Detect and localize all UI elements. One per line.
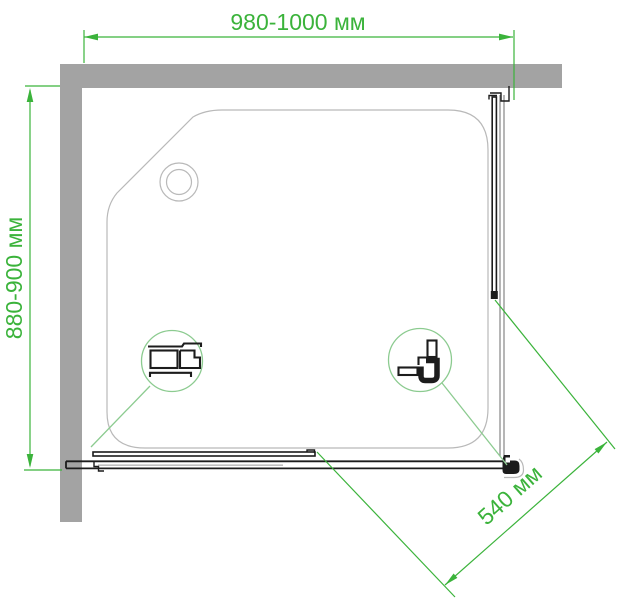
depth-dimension-label: 880-900 мм xyxy=(1,217,27,339)
corner-connector-notch xyxy=(506,458,511,463)
bottom-sliding-door xyxy=(93,450,315,456)
right-glass-panel xyxy=(500,95,504,456)
rail-left-bracket xyxy=(94,462,104,472)
shower-tray xyxy=(107,110,488,448)
right-sliding-door xyxy=(489,96,498,300)
door-roller-cap xyxy=(491,291,498,299)
top-view-schematic: 980-1000 мм 880-900 мм 540 мм xyxy=(0,0,625,600)
width-dimension-label: 980-1000 мм xyxy=(230,9,365,35)
bottom-rail xyxy=(66,461,509,471)
depth-dimension: 880-900 мм xyxy=(1,86,62,470)
left-wall xyxy=(60,64,82,522)
shower-enclosure-drawing: 980-1000 мм 880-900 мм 540 мм xyxy=(0,0,625,600)
top-wall xyxy=(60,64,562,88)
